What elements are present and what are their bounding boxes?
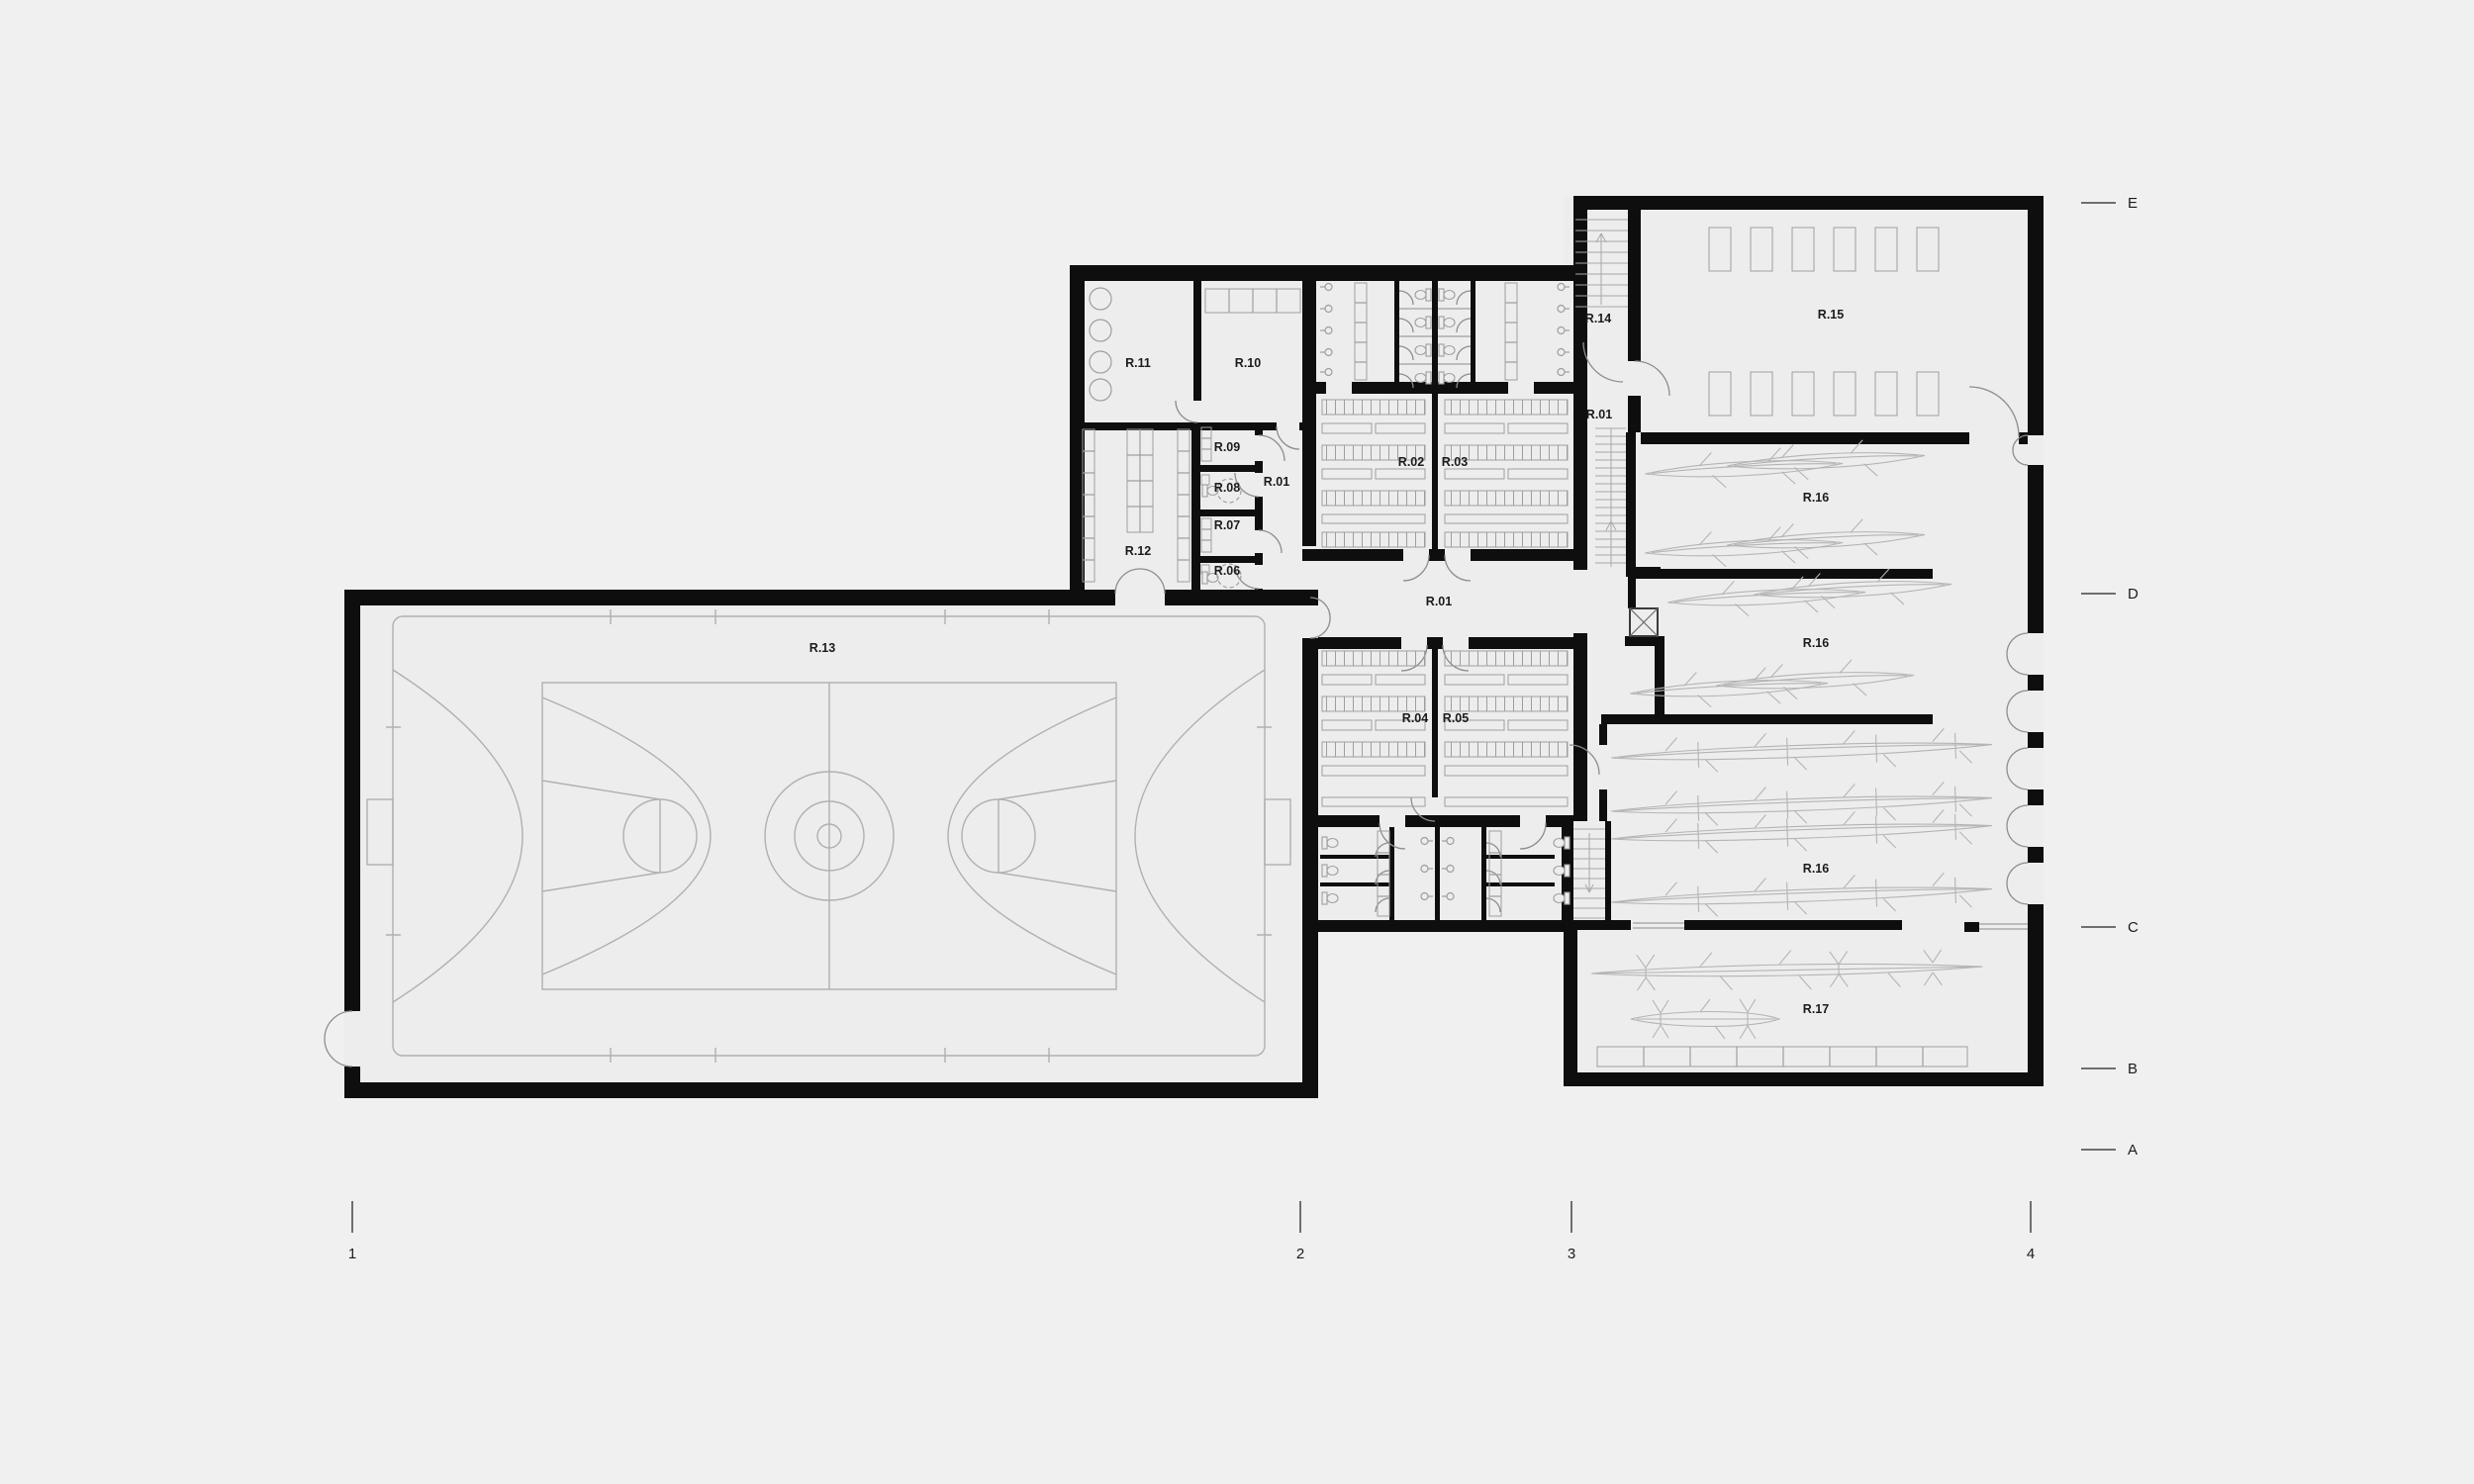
grid-label-A: A [2128, 1142, 2138, 1159]
grid-label-E: E [2128, 195, 2138, 212]
grid-markers-right: E D C B A [2081, 195, 2139, 1159]
room-label-r01b: R.01 [1426, 595, 1452, 608]
grid-label-D: D [2128, 586, 2139, 603]
grid-label-2: 2 [1296, 1246, 1304, 1262]
room-label-r03: R.03 [1442, 455, 1468, 469]
grid-label-B: B [2128, 1061, 2138, 1077]
room-label-r01c: R.01 [1586, 408, 1612, 421]
room-label-r07: R.07 [1214, 518, 1240, 532]
room-label-r13: R.13 [809, 641, 835, 655]
room-label-r04: R.04 [1402, 711, 1428, 725]
room-label-r01a: R.01 [1264, 475, 1289, 489]
room-label-r05: R.05 [1443, 711, 1469, 725]
room-label-r12: R.12 [1125, 544, 1151, 558]
grid-label-4: 4 [2027, 1246, 2035, 1262]
room-label-r16c: R.16 [1803, 862, 1829, 876]
room-label-r10: R.10 [1235, 356, 1261, 370]
room-label-r09: R.09 [1214, 440, 1240, 454]
floor-plan-canvas: R.13 R.11 R.10 R.09 R.08 R.07 R.06 R.12 … [0, 0, 2474, 1484]
room-label-r16a: R.16 [1803, 491, 1829, 505]
grid-markers-bottom: 1 2 3 4 [348, 1201, 2035, 1262]
floor-plan-drawing: R.13 R.11 R.10 R.09 R.08 R.07 R.06 R.12 … [0, 0, 2474, 1484]
room-label-r06: R.06 [1214, 564, 1240, 578]
room-label-r17: R.17 [1803, 1002, 1829, 1016]
grid-label-1: 1 [348, 1246, 356, 1262]
room-label-r08: R.08 [1214, 481, 1240, 495]
grid-label-C: C [2128, 919, 2139, 936]
room-label-r14: R.14 [1585, 312, 1611, 325]
room-label-r11: R.11 [1125, 356, 1151, 370]
grid-label-3: 3 [1568, 1246, 1575, 1262]
room-label-r02: R.02 [1398, 455, 1424, 469]
room-label-r16b: R.16 [1803, 636, 1829, 650]
room-label-r15: R.15 [1818, 308, 1844, 322]
